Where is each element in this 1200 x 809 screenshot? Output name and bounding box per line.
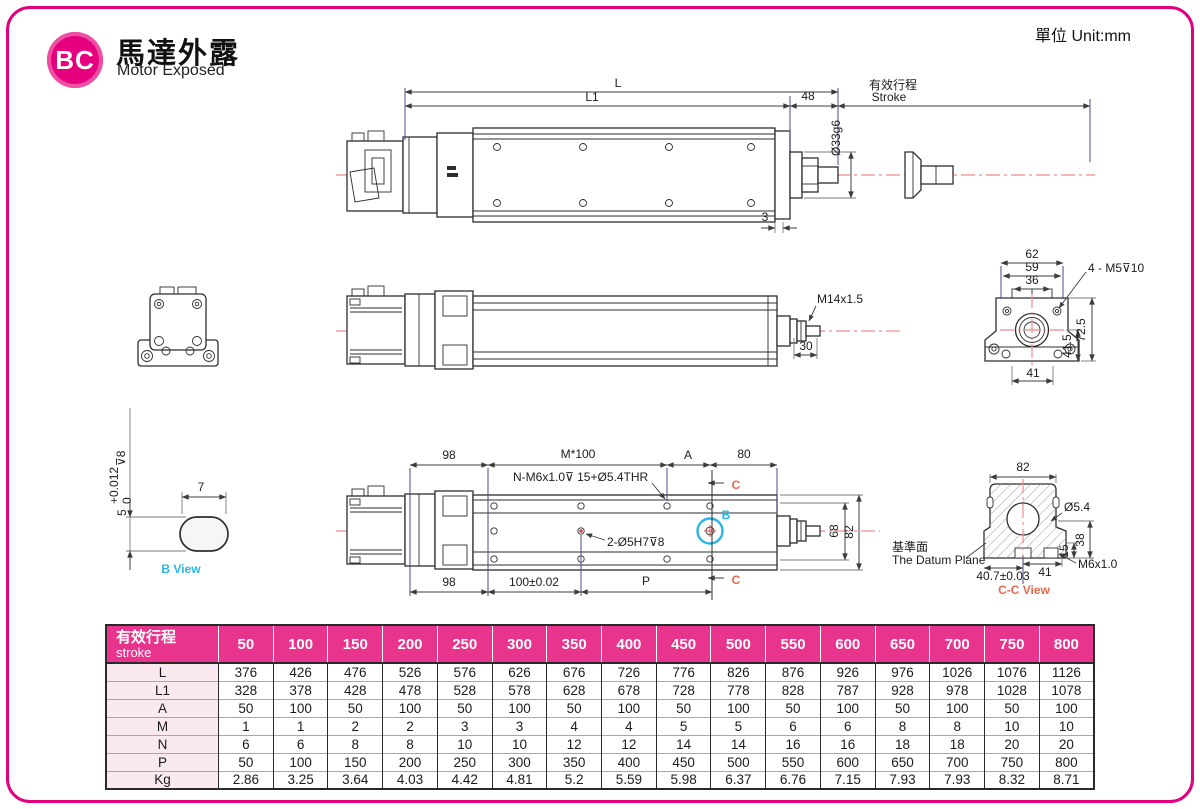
spec-cell: 6.37 bbox=[711, 771, 766, 789]
spec-cell: 2 bbox=[328, 717, 383, 735]
spec-cell: 20 bbox=[985, 735, 1040, 753]
spec-row-N: N6688101012121414161618182020 bbox=[106, 735, 1094, 753]
spec-cell: 6 bbox=[273, 735, 328, 753]
cc-section-view: 82 Ø5.4 38 15 M6x1.0 40.7±0.03 41 基準面 Th… bbox=[892, 460, 1118, 597]
spec-cell: 476 bbox=[328, 663, 383, 681]
dim-L: L bbox=[615, 76, 622, 90]
dim-59: 59 bbox=[1025, 260, 1039, 274]
spec-cell: 578 bbox=[492, 681, 547, 699]
spec-cell: 5 bbox=[711, 717, 766, 735]
dim-A: A bbox=[684, 448, 692, 462]
spec-cell: 50 bbox=[875, 699, 930, 717]
dim-41-5: 41.5 bbox=[1060, 334, 1074, 358]
stroke-value-header: 700 bbox=[930, 625, 985, 663]
cc-dim-41: 41 bbox=[1038, 565, 1052, 579]
stroke-value-header: 50 bbox=[219, 625, 274, 663]
spec-cell: 400 bbox=[602, 753, 657, 771]
b-view-label: B View bbox=[161, 562, 201, 576]
spec-cell: 100 bbox=[711, 699, 766, 717]
spec-cell: 100 bbox=[1039, 699, 1094, 717]
spec-row-M: M112233445566881010 bbox=[106, 717, 1094, 735]
spec-cell: 3.25 bbox=[273, 771, 328, 789]
spec-cell: 100 bbox=[383, 699, 438, 717]
dim-62: 62 bbox=[1025, 247, 1039, 261]
spec-body: L376426476526576626676726776826876926976… bbox=[106, 663, 1094, 789]
spec-cell: 10 bbox=[437, 735, 492, 753]
row-label: M bbox=[106, 717, 219, 735]
datum-label-zh: 基準面 bbox=[892, 539, 928, 554]
stroke-value-header: 250 bbox=[437, 625, 492, 663]
dim-98-top: 98 bbox=[442, 448, 456, 462]
dim-P: P bbox=[642, 574, 650, 588]
spec-cell: 100 bbox=[930, 699, 985, 717]
spec-cell: 726 bbox=[602, 663, 657, 681]
spec-cell: 776 bbox=[656, 663, 711, 681]
spec-cell: 626 bbox=[492, 663, 547, 681]
spec-cell: 876 bbox=[766, 663, 821, 681]
spec-cell: 1028 bbox=[985, 681, 1040, 699]
spec-cell: 500 bbox=[711, 753, 766, 771]
spec-cell: 3.64 bbox=[328, 771, 383, 789]
dim-5-tol-hi: +0.012 bbox=[107, 467, 121, 504]
spec-cell: 926 bbox=[820, 663, 875, 681]
cc-dim-82: 82 bbox=[1016, 460, 1030, 474]
datasheet-page: BC 馬達外露 Motor Exposed 單位 Unit:mm bbox=[0, 0, 1200, 809]
spec-cell: 14 bbox=[711, 735, 766, 753]
spec-cell: 678 bbox=[602, 681, 657, 699]
spec-cell: 1076 bbox=[985, 663, 1040, 681]
stroke-value-header: 350 bbox=[547, 625, 602, 663]
dim-36: 36 bbox=[1025, 273, 1039, 287]
stroke-header-cell: 有效行程stroke bbox=[106, 625, 219, 663]
dim-30: 30 bbox=[799, 339, 813, 353]
spec-cell: 826 bbox=[711, 663, 766, 681]
dim-82: 82 bbox=[842, 525, 856, 539]
rear-end-view: 62 59 36 4 - M5⊽10 41.5 72.5 41 bbox=[985, 247, 1144, 385]
dim-5-tol-lo: 0 bbox=[120, 497, 134, 504]
spec-cell: 18 bbox=[930, 735, 985, 753]
spec-cell: 2 bbox=[383, 717, 438, 735]
spec-row-A: A501005010050100501005010050100501005010… bbox=[106, 699, 1094, 717]
spec-row-L: L376426476526576626676726776826876926976… bbox=[106, 663, 1094, 681]
spec-cell: 50 bbox=[985, 699, 1040, 717]
spec-cell: 450 bbox=[656, 753, 711, 771]
spec-cell: 300 bbox=[492, 753, 547, 771]
spec-cell: 4.81 bbox=[492, 771, 547, 789]
spec-cell: 100 bbox=[273, 753, 328, 771]
cc-thread: M6x1.0 bbox=[1078, 557, 1118, 571]
spec-cell: 16 bbox=[820, 735, 875, 753]
row-label: N bbox=[106, 735, 219, 753]
spec-row-P: P501001502002503003504004505005506006507… bbox=[106, 753, 1094, 771]
spec-cell: 6.76 bbox=[766, 771, 821, 789]
spec-cell: 3 bbox=[437, 717, 492, 735]
spec-cell: 1126 bbox=[1039, 663, 1094, 681]
spec-cell: 100 bbox=[820, 699, 875, 717]
spec-head-row: 有效行程stroke501001502002503003504004505005… bbox=[106, 625, 1094, 663]
spec-cell: 16 bbox=[766, 735, 821, 753]
dim-80: 80 bbox=[737, 447, 751, 461]
spec-cell: 18 bbox=[875, 735, 930, 753]
hole-callout-top: N-M6x1.0⊽ 15+Ø5.4THR bbox=[513, 470, 648, 484]
spec-cell: 5.59 bbox=[602, 771, 657, 789]
spec-row-Kg: Kg2.863.253.644.034.424.815.25.595.986.3… bbox=[106, 771, 1094, 789]
dim-68: 68 bbox=[827, 524, 841, 538]
spec-cell: 650 bbox=[875, 753, 930, 771]
dim-3: 3 bbox=[762, 210, 769, 224]
motor-face-view bbox=[138, 287, 218, 366]
dim-5-depth: ⊽8 bbox=[114, 450, 128, 466]
spec-cell: 2.86 bbox=[219, 771, 274, 789]
dim-L1: L1 bbox=[585, 90, 599, 104]
spec-cell: 478 bbox=[383, 681, 438, 699]
stroke-value-header: 200 bbox=[383, 625, 438, 663]
spec-cell: 6 bbox=[820, 717, 875, 735]
spec-cell: 150 bbox=[328, 753, 383, 771]
spec-cell: 750 bbox=[985, 753, 1040, 771]
b-view: 5 +0.012 0 ⊽8 7 B View bbox=[107, 408, 228, 576]
cc-dim-407: 40.7±0.03 bbox=[976, 569, 1030, 583]
row-label: L1 bbox=[106, 681, 219, 699]
spec-cell: 50 bbox=[219, 699, 274, 717]
spec-cell: 10 bbox=[1039, 717, 1094, 735]
stroke-value-header: 650 bbox=[875, 625, 930, 663]
cc-view-label: C-C View bbox=[998, 583, 1050, 597]
section-c-top: C bbox=[732, 478, 741, 492]
spec-cell: 4 bbox=[602, 717, 657, 735]
spec-cell: 4.42 bbox=[437, 771, 492, 789]
spec-cell: 528 bbox=[437, 681, 492, 699]
spec-cell: 550 bbox=[766, 753, 821, 771]
dim-m14: M14x1.5 bbox=[817, 292, 863, 306]
stroke-value-header: 750 bbox=[985, 625, 1040, 663]
spec-cell: 1026 bbox=[930, 663, 985, 681]
spec-cell: 50 bbox=[766, 699, 821, 717]
spec-cell: 100 bbox=[273, 699, 328, 717]
spec-cell: 576 bbox=[437, 663, 492, 681]
spec-cell: 828 bbox=[766, 681, 821, 699]
spec-cell: 3 bbox=[492, 717, 547, 735]
section-c-bottom: C bbox=[732, 573, 741, 587]
spec-cell: 8 bbox=[875, 717, 930, 735]
stroke-value-header: 100 bbox=[273, 625, 328, 663]
stroke-value-header: 600 bbox=[820, 625, 875, 663]
spec-cell: 526 bbox=[383, 663, 438, 681]
cc-dim-15: 15 bbox=[1057, 544, 1071, 558]
spec-cell: 6 bbox=[766, 717, 821, 735]
spec-cell: 600 bbox=[820, 753, 875, 771]
spec-cell: 1 bbox=[273, 717, 328, 735]
spec-cell: 5 bbox=[656, 717, 711, 735]
spec-cell: 5.2 bbox=[547, 771, 602, 789]
spec-cell: 1078 bbox=[1039, 681, 1094, 699]
stroke-value-header: 300 bbox=[492, 625, 547, 663]
spec-cell: 6 bbox=[219, 735, 274, 753]
detail-b-label: B bbox=[722, 508, 731, 522]
middle-top-view: M14x1.5 30 bbox=[336, 286, 900, 369]
spec-cell: 8.32 bbox=[985, 771, 1040, 789]
spec-cell: 10 bbox=[492, 735, 547, 753]
spec-cell: 426 bbox=[273, 663, 328, 681]
spec-cell: 8 bbox=[930, 717, 985, 735]
stroke-value-header: 550 bbox=[766, 625, 821, 663]
spec-cell: 200 bbox=[383, 753, 438, 771]
dim-98-bottom: 98 bbox=[442, 575, 456, 589]
spec-cell: 976 bbox=[875, 663, 930, 681]
spec-cell: 50 bbox=[219, 753, 274, 771]
spec-cell: 10 bbox=[985, 717, 1040, 735]
stroke-value-header: 150 bbox=[328, 625, 383, 663]
spec-cell: 700 bbox=[930, 753, 985, 771]
spec-cell: 50 bbox=[547, 699, 602, 717]
spec-cell: 428 bbox=[328, 681, 383, 699]
spec-cell: 14 bbox=[656, 735, 711, 753]
dim-48: 48 bbox=[801, 89, 815, 103]
spec-cell: 4 bbox=[547, 717, 602, 735]
datum-label-en: The Datum Plane bbox=[892, 553, 986, 567]
spec-cell: 350 bbox=[547, 753, 602, 771]
spec-cell: 7.93 bbox=[930, 771, 985, 789]
spec-cell: 8.71 bbox=[1039, 771, 1094, 789]
spec-cell: 728 bbox=[656, 681, 711, 699]
stroke-value-header: 400 bbox=[602, 625, 657, 663]
spec-cell: 376 bbox=[219, 663, 274, 681]
spec-cell: 778 bbox=[711, 681, 766, 699]
stroke-label-en: Stroke bbox=[872, 90, 907, 104]
spec-cell: 250 bbox=[437, 753, 492, 771]
top-side-view: L L1 48 有效行程 Stroke Ø33g6 3 bbox=[336, 76, 1095, 233]
spec-cell: 5.98 bbox=[656, 771, 711, 789]
spec-cell: 20 bbox=[1039, 735, 1094, 753]
bottom-mounting-view: 98 M*100 A 80 N-M6x1.0⊽ 15+Ø5.4THR 2-Ø5H… bbox=[336, 447, 880, 600]
spec-cell: 7.93 bbox=[875, 771, 930, 789]
stroke-value-header: 800 bbox=[1039, 625, 1094, 663]
spec-cell: 50 bbox=[437, 699, 492, 717]
dim-m100: M*100 bbox=[561, 447, 596, 461]
spec-cell: 7.15 bbox=[820, 771, 875, 789]
dim-72-5: 72.5 bbox=[1074, 318, 1088, 342]
spec-row-L1: L132837842847852857862867872877882878792… bbox=[106, 681, 1094, 699]
stroke-value-header: 450 bbox=[656, 625, 711, 663]
spec-cell: 100 bbox=[602, 699, 657, 717]
spec-cell: 378 bbox=[273, 681, 328, 699]
spec-cell: 928 bbox=[875, 681, 930, 699]
spec-cell: 978 bbox=[930, 681, 985, 699]
dim-41: 41 bbox=[1026, 366, 1040, 380]
dim-4-m5: 4 - M5⊽10 bbox=[1088, 261, 1144, 275]
dim-7: 7 bbox=[198, 480, 205, 494]
spec-cell: 4.03 bbox=[383, 771, 438, 789]
spec-cell: 328 bbox=[219, 681, 274, 699]
spec-cell: 787 bbox=[820, 681, 875, 699]
cc-dim-d54: Ø5.4 bbox=[1064, 500, 1090, 514]
row-label: P bbox=[106, 753, 219, 771]
spec-cell: 12 bbox=[602, 735, 657, 753]
dim-5: 5 bbox=[115, 509, 129, 516]
spec-cell: 100 bbox=[492, 699, 547, 717]
spec-cell: 12 bbox=[547, 735, 602, 753]
spec-cell: 8 bbox=[383, 735, 438, 753]
spec-cell: 50 bbox=[656, 699, 711, 717]
row-label: A bbox=[106, 699, 219, 717]
stroke-value-header: 500 bbox=[711, 625, 766, 663]
hole-callout-mid: 2-Ø5H7⊽8 bbox=[607, 535, 665, 549]
cc-dim-38: 38 bbox=[1073, 533, 1087, 547]
spec-cell: 50 bbox=[328, 699, 383, 717]
dim-100: 100±0.02 bbox=[509, 575, 559, 589]
spec-cell: 676 bbox=[547, 663, 602, 681]
spec-table: 有效行程stroke501001502002503003504004505005… bbox=[105, 624, 1095, 790]
row-label: L bbox=[106, 663, 219, 681]
spec-cell: 1 bbox=[219, 717, 274, 735]
spec-cell: 628 bbox=[547, 681, 602, 699]
dim-dia33: Ø33g6 bbox=[829, 120, 843, 156]
spec-cell: 8 bbox=[328, 735, 383, 753]
spec-cell: 800 bbox=[1039, 753, 1094, 771]
row-label: Kg bbox=[106, 771, 219, 789]
